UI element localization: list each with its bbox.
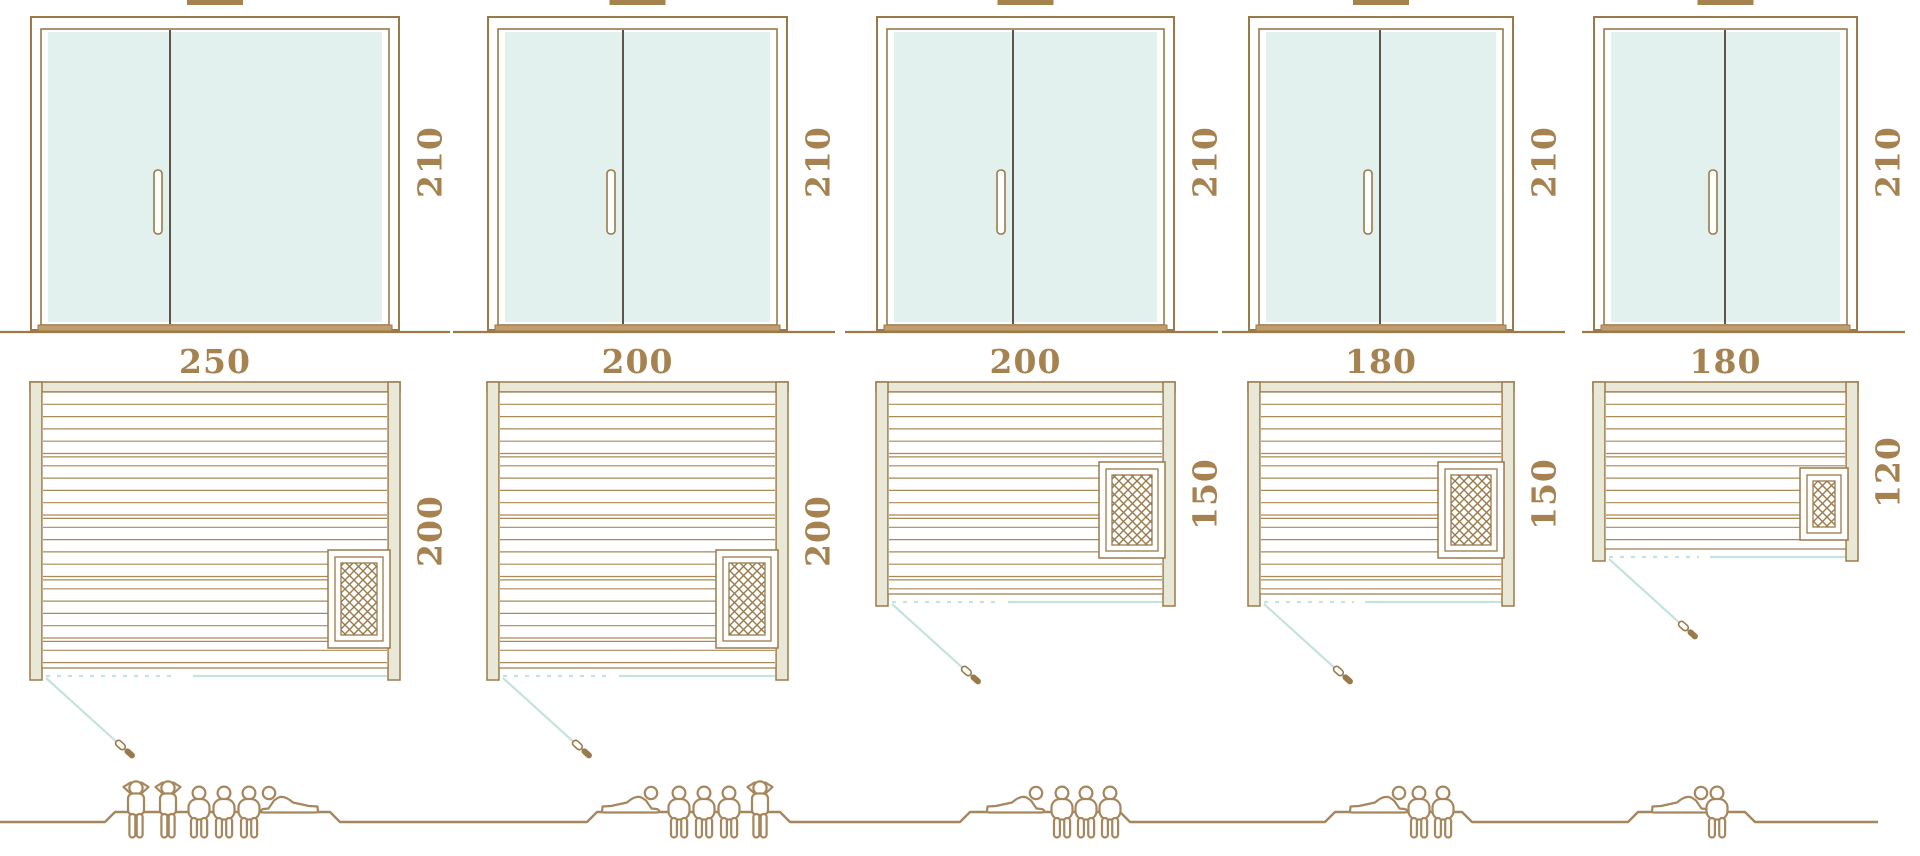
heater-icon bbox=[1099, 462, 1165, 558]
seated-person-icon bbox=[1409, 787, 1430, 838]
seated-person-icon bbox=[1100, 787, 1121, 838]
reclining-person-icon bbox=[1652, 787, 1709, 813]
standing-person-icon bbox=[156, 781, 181, 837]
plan-wall-left bbox=[1248, 382, 1260, 606]
heater-grid bbox=[1813, 481, 1835, 527]
plan-wall-left bbox=[30, 382, 42, 680]
plan-wall-top bbox=[1593, 382, 1858, 392]
glass-panel-left bbox=[505, 32, 622, 322]
door-width-dimension: 180 bbox=[1248, 343, 1514, 379]
plan-depth-dimension: 150 bbox=[1522, 444, 1566, 544]
glass-panel-right bbox=[1726, 32, 1840, 322]
door-handle bbox=[1364, 170, 1372, 234]
door-handle bbox=[997, 170, 1005, 234]
plan-wall-top bbox=[30, 382, 400, 392]
roof-cap-bar bbox=[187, 0, 243, 5]
door-handle bbox=[1709, 170, 1717, 234]
roof-cap-bar bbox=[1353, 0, 1409, 5]
door-elevation bbox=[1594, 0, 1857, 331]
plan-wall-top bbox=[876, 382, 1175, 392]
seated-person-icon bbox=[1076, 787, 1097, 838]
floor-plan bbox=[30, 382, 400, 760]
door-elevation bbox=[31, 0, 399, 331]
glass-panel-right bbox=[1381, 32, 1496, 322]
floor-plan bbox=[876, 382, 1175, 686]
seated-person-icon bbox=[719, 787, 740, 838]
seated-person-icon bbox=[1052, 787, 1073, 838]
seated-person-icon bbox=[189, 787, 210, 838]
plan-depth-dimension: 200 bbox=[408, 481, 452, 581]
glass-panel-right bbox=[624, 32, 770, 322]
plan-wall-top bbox=[487, 382, 788, 392]
reclining-person-icon bbox=[602, 787, 659, 813]
plan-wall-top bbox=[1248, 382, 1514, 392]
glass-panel-right bbox=[1014, 32, 1157, 322]
plan-depth-dimension: 120 bbox=[1866, 422, 1910, 522]
threshold bbox=[884, 325, 1167, 331]
heater-icon bbox=[328, 550, 390, 648]
floor-plan bbox=[487, 382, 788, 760]
plan-wall-left bbox=[487, 382, 499, 680]
seated-person-icon bbox=[694, 787, 715, 838]
door-height-dimension: 210 bbox=[796, 112, 840, 212]
standing-person-icon bbox=[748, 781, 773, 837]
seated-person-icon bbox=[214, 787, 235, 838]
glass-panel-left bbox=[1611, 32, 1724, 322]
diagram-canvas bbox=[0, 0, 1920, 856]
capacity-group bbox=[987, 787, 1121, 838]
door-handle bbox=[154, 170, 162, 234]
floor-plan bbox=[1248, 382, 1514, 686]
door-width-dimension: 200 bbox=[487, 343, 788, 379]
plan-wall-left bbox=[1593, 382, 1605, 561]
seated-person-icon bbox=[1707, 787, 1728, 838]
seated-person-icon bbox=[1433, 787, 1454, 838]
heater-grid bbox=[729, 563, 765, 635]
door-height-dimension: 210 bbox=[1183, 112, 1227, 212]
floor-plan bbox=[1593, 382, 1858, 641]
plan-depth-dimension: 200 bbox=[796, 481, 840, 581]
reclining-person-icon bbox=[261, 787, 318, 813]
sauna-comparison-diagram: 2502102002002102002002101501802101501802… bbox=[0, 0, 1920, 856]
heater-grid bbox=[1112, 475, 1152, 545]
door-handle bbox=[607, 170, 615, 234]
threshold bbox=[1601, 325, 1850, 331]
heater-icon bbox=[716, 550, 778, 648]
seated-person-icon bbox=[239, 787, 260, 838]
reclining-person-icon bbox=[1350, 787, 1407, 813]
threshold bbox=[495, 325, 780, 331]
glass-panel-right bbox=[171, 32, 382, 322]
glass-panel-left bbox=[894, 32, 1012, 322]
heater-grid bbox=[1451, 475, 1491, 545]
seated-person-icon bbox=[669, 787, 690, 838]
threshold bbox=[38, 325, 392, 331]
capacity-group bbox=[1350, 787, 1454, 838]
capacity-group bbox=[602, 781, 773, 837]
door-height-dimension: 210 bbox=[408, 112, 452, 212]
door-height-dimension: 210 bbox=[1866, 112, 1910, 212]
threshold bbox=[1256, 325, 1506, 331]
door-height-dimension: 210 bbox=[1522, 112, 1566, 212]
door-width-dimension: 200 bbox=[876, 343, 1175, 379]
capacity-group bbox=[1652, 787, 1728, 838]
door-elevation bbox=[488, 0, 787, 331]
door-elevation bbox=[877, 0, 1174, 331]
roof-cap-bar bbox=[610, 0, 666, 5]
standing-person-icon bbox=[124, 781, 149, 837]
glass-panel-left bbox=[48, 32, 169, 322]
heater-icon bbox=[1438, 462, 1504, 558]
roof-cap-bar bbox=[1698, 0, 1754, 5]
heater-grid bbox=[341, 563, 377, 635]
door-width-dimension: 180 bbox=[1593, 343, 1858, 379]
plan-depth-dimension: 150 bbox=[1183, 444, 1227, 544]
heater-icon bbox=[1800, 468, 1848, 540]
plan-wall-left bbox=[876, 382, 888, 606]
door-width-dimension: 250 bbox=[30, 343, 400, 379]
reclining-person-icon bbox=[987, 787, 1044, 813]
capacity-group bbox=[124, 781, 319, 837]
glass-panel-left bbox=[1266, 32, 1379, 322]
roof-cap-bar bbox=[998, 0, 1054, 5]
door-elevation bbox=[1249, 0, 1513, 331]
